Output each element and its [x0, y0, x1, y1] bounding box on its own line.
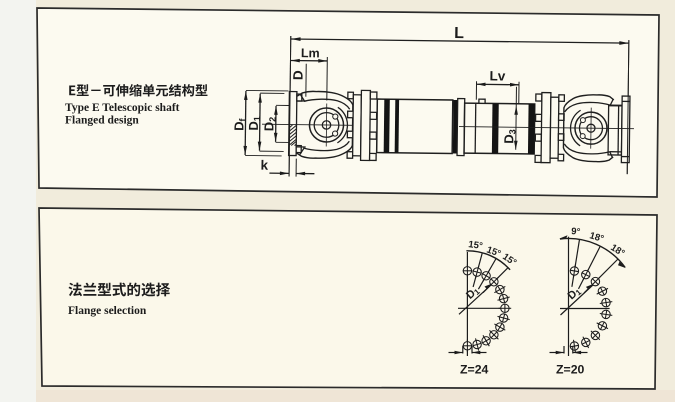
svg-text:L: L: [454, 25, 464, 42]
svg-text:Flanged design: Flanged design: [65, 115, 139, 127]
svg-text:Z=20: Z=20: [556, 363, 585, 377]
svg-text:15°: 15°: [468, 239, 484, 252]
svg-text:Lm: Lm: [301, 46, 320, 60]
svg-text:D: D: [291, 70, 306, 80]
svg-text:Type E Telescopic shaft: Type E Telescopic shaft: [65, 102, 180, 114]
svg-text:Z=24: Z=24: [460, 363, 489, 377]
svg-text:Lv: Lv: [490, 68, 506, 83]
svg-text:Flange selection: Flange selection: [68, 305, 147, 317]
svg-text:9°: 9°: [571, 226, 581, 238]
svg-text:k: k: [260, 158, 268, 173]
